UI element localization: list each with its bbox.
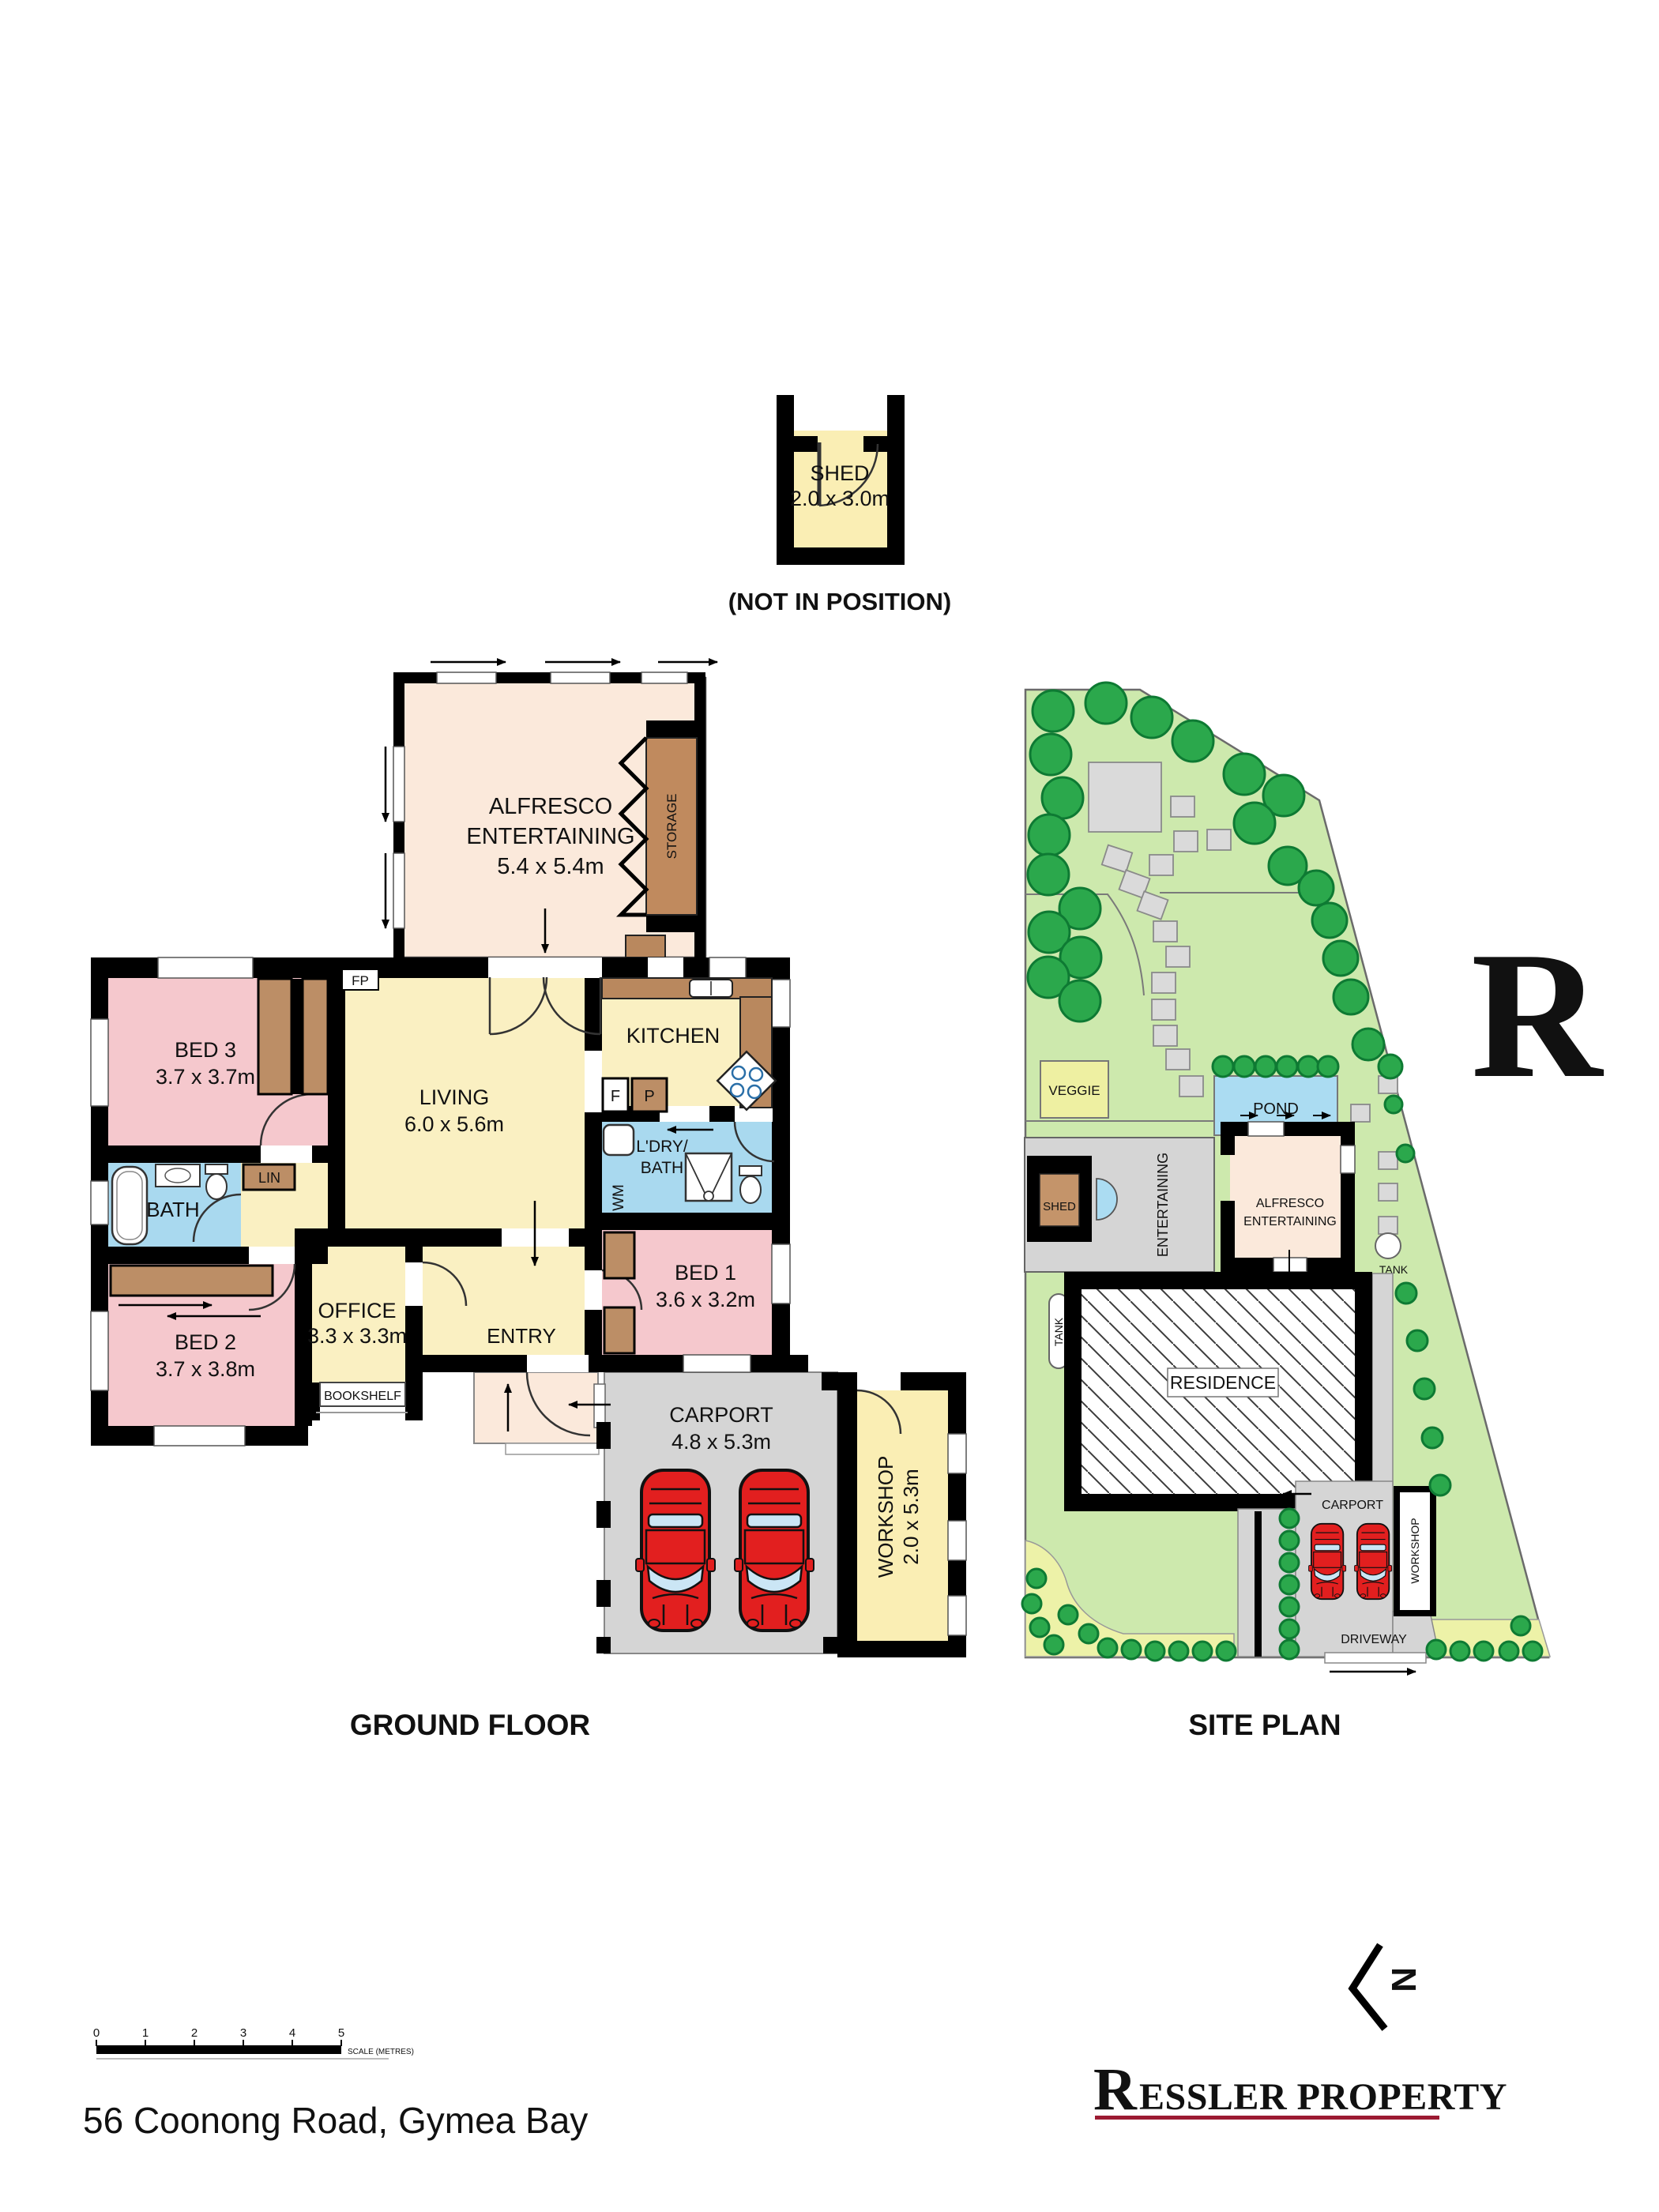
site-alfresco-label-2: ENTERTAINING	[1243, 1215, 1337, 1228]
bed3-dims: 3.7 x 3.7m	[156, 1065, 255, 1089]
kitchen-label: KITCHEN	[626, 1024, 720, 1048]
carport-dims: 4.8 x 5.3m	[671, 1430, 771, 1454]
workshop-label: WORKSHOP	[874, 1456, 897, 1578]
site-plan-title: SITE PLAN	[1188, 1709, 1341, 1741]
driveway-label: DRIVEWAY	[1341, 1633, 1407, 1646]
alfresco-label-2: ENTERTAINING	[466, 824, 634, 849]
site-workshop-label: WORKSHOP	[1409, 1518, 1421, 1583]
carport-label: CARPORT	[669, 1403, 773, 1427]
laundry-tub	[604, 1125, 634, 1155]
watermark-letter: R	[1471, 914, 1604, 1115]
scale-tick-2: 2	[191, 2026, 197, 2040]
site-alfresco: ALFRESCO ENTERTAINING	[1221, 1115, 1355, 1283]
alfresco-threshold	[626, 935, 665, 957]
bed2-dims: 3.7 x 3.8m	[156, 1357, 255, 1381]
workshop-dims: 2.0 x 5.3m	[899, 1469, 923, 1564]
wm-label: WM	[611, 1184, 627, 1211]
office-dims: 3.3 x 3.3m	[307, 1324, 407, 1348]
entertaining-label: ENTERTAINING	[1155, 1153, 1171, 1257]
site-carport-label: CARPORT	[1322, 1499, 1383, 1512]
bed1-robe-2	[604, 1307, 634, 1353]
laundry-label-2: BATH	[641, 1159, 683, 1177]
shed-dims: 2.0 x 3.0m	[790, 487, 890, 510]
car-2	[735, 1470, 814, 1631]
car-1	[636, 1470, 715, 1631]
scale-tick-1: 1	[142, 2026, 149, 2040]
brand-underline	[1095, 2116, 1439, 2120]
ground-floor-title: GROUND FLOOR	[350, 1709, 590, 1741]
living-label: LIVING	[419, 1085, 490, 1109]
floorplan-page: SHED 2.0 x 3.0m (NOT IN POSITION)	[0, 0, 1659, 2212]
site-alfresco-label-1: ALFRESCO	[1256, 1197, 1324, 1210]
address: 56 Coonong Road, Gymea Bay	[83, 2100, 588, 2141]
bed1-label: BED 1	[675, 1261, 736, 1285]
bath-label: BATH	[146, 1198, 199, 1221]
bed2-robe	[111, 1266, 273, 1296]
site-car-1	[1309, 1524, 1346, 1599]
scale-tick-0: 0	[93, 2026, 100, 2040]
entry-label: ENTRY	[487, 1324, 556, 1348]
site-car-2	[1355, 1524, 1392, 1599]
bed3-robe-1	[258, 979, 292, 1094]
bed1-robe-1	[604, 1232, 634, 1278]
scale-bar: 0 1 2 3 4 5 SCALE (METRES)	[93, 2026, 414, 2059]
brand-rest: ESSLER PROPERTY	[1139, 2076, 1507, 2118]
north-letter: N	[1384, 1967, 1423, 1992]
tank-left-label: TANK	[1052, 1317, 1065, 1346]
pantry-label: P	[644, 1088, 654, 1105]
tank-right	[1375, 1233, 1401, 1258]
site-residence: RESIDENCE	[1064, 1272, 1393, 1511]
veggie-label: VEGGIE	[1048, 1083, 1100, 1098]
side-door-leaf	[594, 1384, 605, 1428]
scale-tick-4: 4	[289, 2026, 295, 2040]
storage-label: STORAGE	[664, 794, 679, 860]
site-plan: VEGGIE POND ENTERTAINING SHED ALFRESCO E…	[1022, 683, 1550, 1741]
toilet-laundry	[739, 1166, 762, 1176]
footer: 0 1 2 3 4 5 SCALE (METRES) 56 Coonong Ro…	[83, 1945, 1507, 2141]
scale-tick-3: 3	[240, 2026, 246, 2040]
residence-label: RESIDENCE	[1170, 1372, 1276, 1393]
porch-step	[506, 1443, 599, 1454]
shed-label: SHED	[810, 461, 869, 485]
bed3-robe-2	[303, 979, 328, 1094]
floorplan-canvas: SHED 2.0 x 3.0m (NOT IN POSITION)	[0, 0, 1659, 2212]
entry-porch	[474, 1372, 598, 1443]
kitchen-counter-top	[602, 978, 772, 999]
north-arrow-icon: N	[1352, 1945, 1423, 2029]
brand-logo: R ESSLER PROPERTY	[1093, 2056, 1507, 2123]
fireplace-label: FP	[352, 973, 369, 988]
toilet-bath	[205, 1164, 228, 1174]
ground-floor-plan: STORAGE	[91, 662, 966, 1741]
site-shed-label: SHED	[1043, 1200, 1076, 1213]
not-in-position-label: (NOT IN POSITION)	[728, 588, 951, 615]
bed3-label: BED 3	[175, 1038, 236, 1062]
laundry-label-1: L'DRY/	[636, 1138, 688, 1156]
office-label: OFFICE	[318, 1299, 397, 1322]
bookshelf-label: BOOKSHELF	[324, 1390, 401, 1403]
bed2-label: BED 2	[175, 1330, 236, 1354]
brand-initial: R	[1093, 2056, 1138, 2123]
scale-caption: SCALE (METRES)	[348, 2048, 414, 2056]
scale-tick-5: 5	[338, 2026, 344, 2040]
alfresco-dims: 5.4 x 5.4m	[497, 854, 604, 879]
site-driveway-carport: CARPORT DRIVEWAY WORKSHOP	[1238, 1481, 1439, 1672]
alfresco-label-1: ALFRESCO	[489, 794, 612, 819]
bed1-dims: 3.6 x 3.2m	[656, 1288, 755, 1311]
living-dims: 6.0 x 5.6m	[404, 1112, 504, 1136]
shed-detached: SHED 2.0 x 3.0m (NOT IN POSITION)	[728, 395, 951, 615]
linen-label: LIN	[258, 1170, 280, 1186]
fridge-label: F	[611, 1088, 620, 1105]
